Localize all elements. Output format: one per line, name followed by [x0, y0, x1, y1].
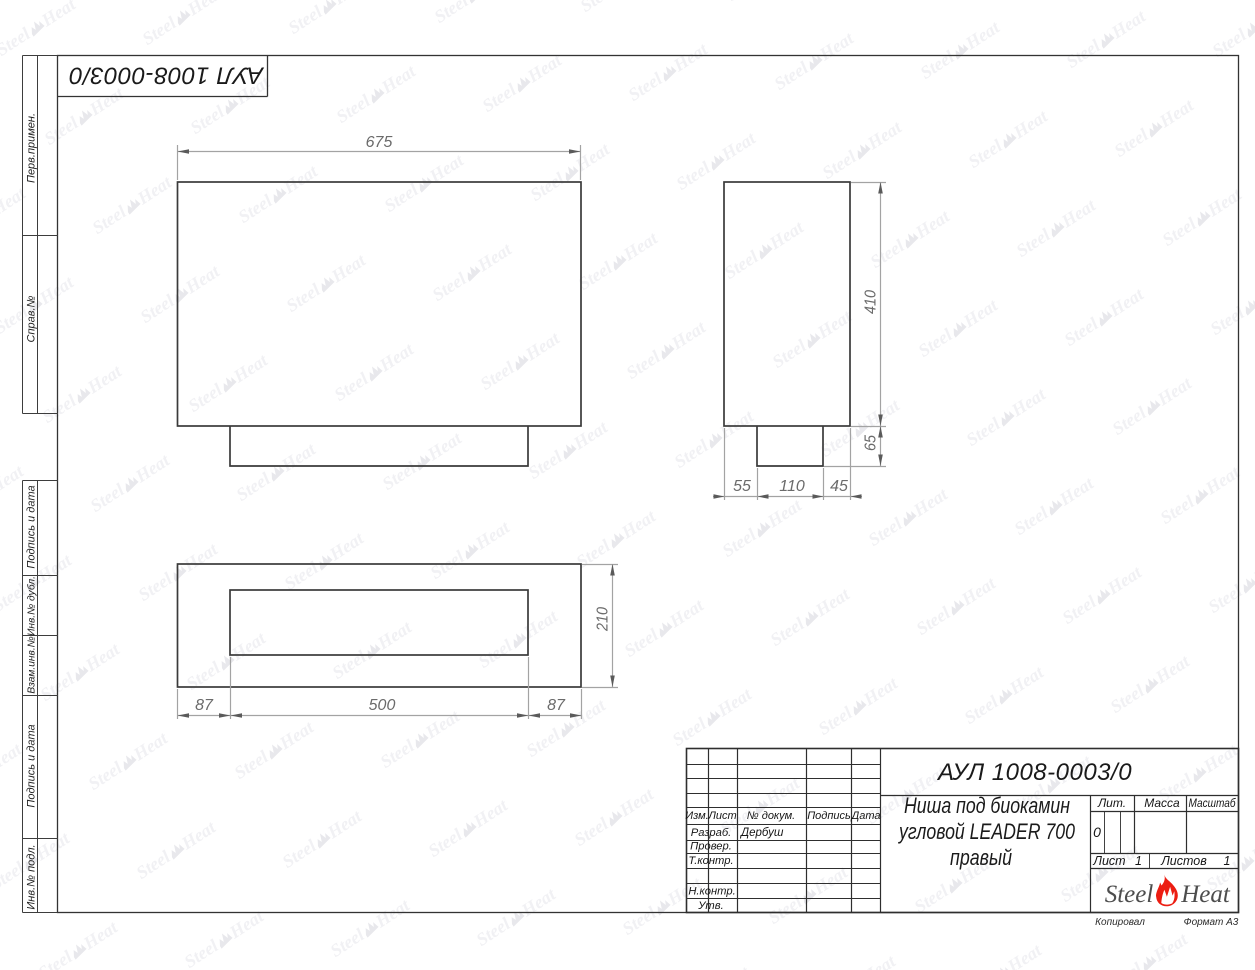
svg-text:87: 87 — [195, 697, 214, 714]
svg-text:Взам.инв.№: Взам.инв.№ — [27, 636, 38, 693]
svg-text:Лит.: Лит. — [1097, 796, 1126, 810]
svg-text:87: 87 — [547, 697, 566, 714]
svg-text:Подпись: Подпись — [807, 810, 851, 822]
svg-text:Разраб.: Разраб. — [691, 827, 731, 839]
svg-text:Масштаб: Масштаб — [1189, 798, 1236, 810]
svg-text:АУЛ 1008-0003/0: АУЛ 1008-0003/0 — [936, 759, 1132, 786]
svg-text:Листов: Листов — [1160, 854, 1207, 868]
svg-text:Т.контр.: Т.контр. — [688, 855, 733, 867]
svg-text:410: 410 — [863, 290, 880, 314]
svg-text:Н.контр.: Н.контр. — [688, 886, 735, 898]
svg-text:1: 1 — [1135, 854, 1142, 868]
svg-text:Масса: Масса — [1144, 796, 1180, 810]
svg-text:АУЛ 1008-0003/0: АУЛ 1008-0003/0 — [69, 62, 265, 89]
svg-text:Лист: Лист — [707, 810, 736, 822]
svg-text:Справ.№: Справ.№ — [26, 295, 38, 342]
svg-text:210: 210 — [595, 607, 612, 632]
svg-text:№ докум.: № докум. — [747, 810, 795, 822]
svg-text:угловой LEADER 700: угловой LEADER 700 — [897, 819, 1075, 844]
svg-text:Подпись и дата: Подпись и дата — [26, 724, 38, 807]
svg-text:Подпись и дата: Подпись и дата — [26, 485, 38, 568]
svg-text:Формат А3: Формат А3 — [1184, 917, 1239, 928]
svg-text:Изм.: Изм. — [685, 810, 708, 822]
svg-text:Heat: Heat — [1180, 881, 1231, 908]
svg-text:Steel: Steel — [1105, 881, 1154, 908]
svg-text:Провер.: Провер. — [690, 841, 732, 853]
svg-text:55: 55 — [733, 478, 751, 495]
svg-text:Дербуш: Дербуш — [739, 827, 784, 839]
svg-text:Перв.примен.: Перв.примен. — [26, 113, 38, 183]
svg-text:45: 45 — [830, 478, 848, 495]
svg-text:65: 65 — [863, 435, 880, 451]
svg-text:Инв.№ подл.: Инв.№ подл. — [26, 844, 38, 909]
svg-text:правый: правый — [950, 845, 1012, 870]
svg-text:110: 110 — [779, 478, 805, 495]
svg-text:0: 0 — [1093, 824, 1101, 840]
svg-text:675: 675 — [366, 134, 393, 151]
svg-text:Инв.№ дубл.: Инв.№ дубл. — [26, 576, 38, 636]
svg-text:Ниша под биокамин: Ниша под биокамин — [904, 793, 1070, 818]
svg-text:Дата: Дата — [849, 810, 880, 822]
svg-text:1: 1 — [1224, 854, 1231, 868]
svg-text:Копировал: Копировал — [1095, 917, 1145, 928]
svg-text:500: 500 — [369, 697, 396, 714]
svg-text:Лист: Лист — [1092, 854, 1125, 868]
svg-text:Утв.: Утв. — [697, 900, 723, 912]
